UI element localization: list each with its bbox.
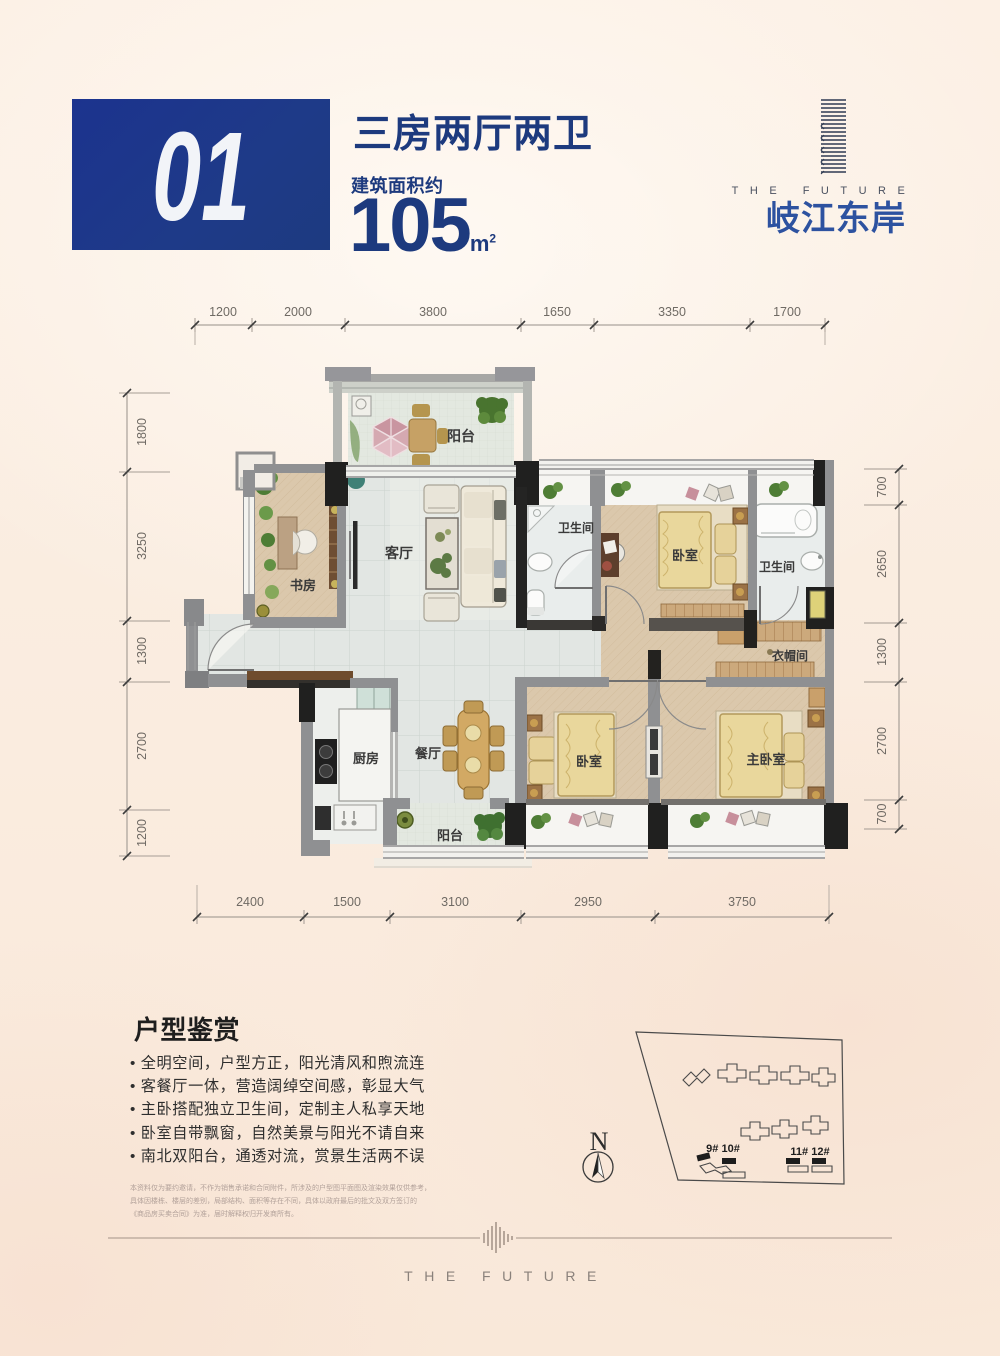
svg-text:阳台: 阳台	[447, 428, 475, 444]
svg-text:9# 10#: 9# 10#	[706, 1143, 740, 1155]
svg-text:2400: 2400	[236, 895, 264, 909]
svg-text:1700: 1700	[773, 305, 801, 319]
svg-text:3100: 3100	[441, 895, 469, 909]
svg-text:2950: 2950	[574, 895, 602, 909]
svg-text:1800: 1800	[135, 418, 149, 446]
svg-text:2000: 2000	[284, 305, 312, 319]
svg-text:主卧室: 主卧室	[746, 752, 785, 767]
svg-text:1200: 1200	[135, 819, 149, 847]
svg-text:1300: 1300	[875, 638, 889, 666]
svg-text:1650: 1650	[543, 305, 571, 319]
svg-text:1500: 1500	[333, 895, 361, 909]
svg-text:书房: 书房	[290, 578, 316, 593]
svg-text:3250: 3250	[135, 532, 149, 560]
svg-text:卧室: 卧室	[672, 548, 698, 563]
svg-text:3750: 3750	[728, 895, 756, 909]
svg-text:卧室: 卧室	[576, 754, 602, 769]
svg-text:2700: 2700	[135, 732, 149, 760]
svg-text:卫生间: 卫生间	[759, 559, 795, 574]
svg-text:厨房: 厨房	[353, 751, 379, 766]
svg-text:700: 700	[875, 477, 889, 498]
svg-text:1200: 1200	[209, 305, 237, 319]
svg-text:餐厅: 餐厅	[414, 746, 441, 761]
svg-text:3800: 3800	[419, 305, 447, 319]
svg-text:卫生间: 卫生间	[558, 520, 594, 535]
svg-text:客厅: 客厅	[384, 545, 413, 561]
svg-text:3350: 3350	[658, 305, 686, 319]
svg-text:阳台: 阳台	[437, 828, 463, 843]
svg-text:衣帽间: 衣帽间	[772, 648, 808, 663]
svg-text:1300: 1300	[135, 637, 149, 665]
svg-text:700: 700	[875, 804, 889, 825]
svg-text:2650: 2650	[875, 550, 889, 578]
svg-text:2700: 2700	[875, 727, 889, 755]
svg-text:11# 12#: 11# 12#	[790, 1146, 829, 1158]
